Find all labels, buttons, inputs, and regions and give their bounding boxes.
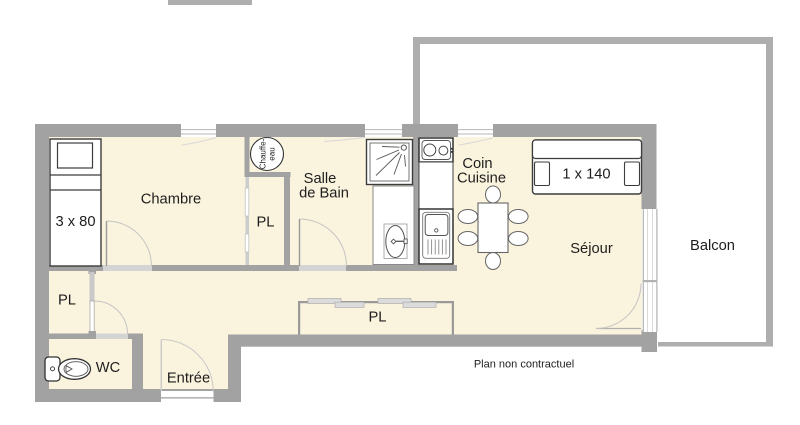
svg-text:Séjour: Séjour bbox=[570, 241, 613, 257]
svg-text:Chambre: Chambre bbox=[141, 192, 201, 208]
svg-text:Balcon: Balcon bbox=[690, 238, 735, 254]
svg-text:3 x 80: 3 x 80 bbox=[55, 214, 95, 230]
svg-text:1 x 140: 1 x 140 bbox=[562, 167, 610, 183]
svg-text:WC: WC bbox=[96, 360, 121, 376]
svg-text:PL: PL bbox=[257, 215, 275, 231]
svg-text:eau: eau bbox=[268, 147, 277, 160]
svg-text:de Bain: de Bain bbox=[299, 186, 349, 202]
svg-text:Entrée: Entrée bbox=[167, 371, 210, 387]
svg-text:Plan non contractuel: Plan non contractuel bbox=[474, 359, 574, 371]
svg-text:PL: PL bbox=[369, 310, 387, 326]
svg-text:PL: PL bbox=[58, 293, 76, 309]
svg-text:Chauffe-: Chauffe- bbox=[259, 138, 268, 169]
svg-text:Cuisine: Cuisine bbox=[457, 171, 506, 187]
